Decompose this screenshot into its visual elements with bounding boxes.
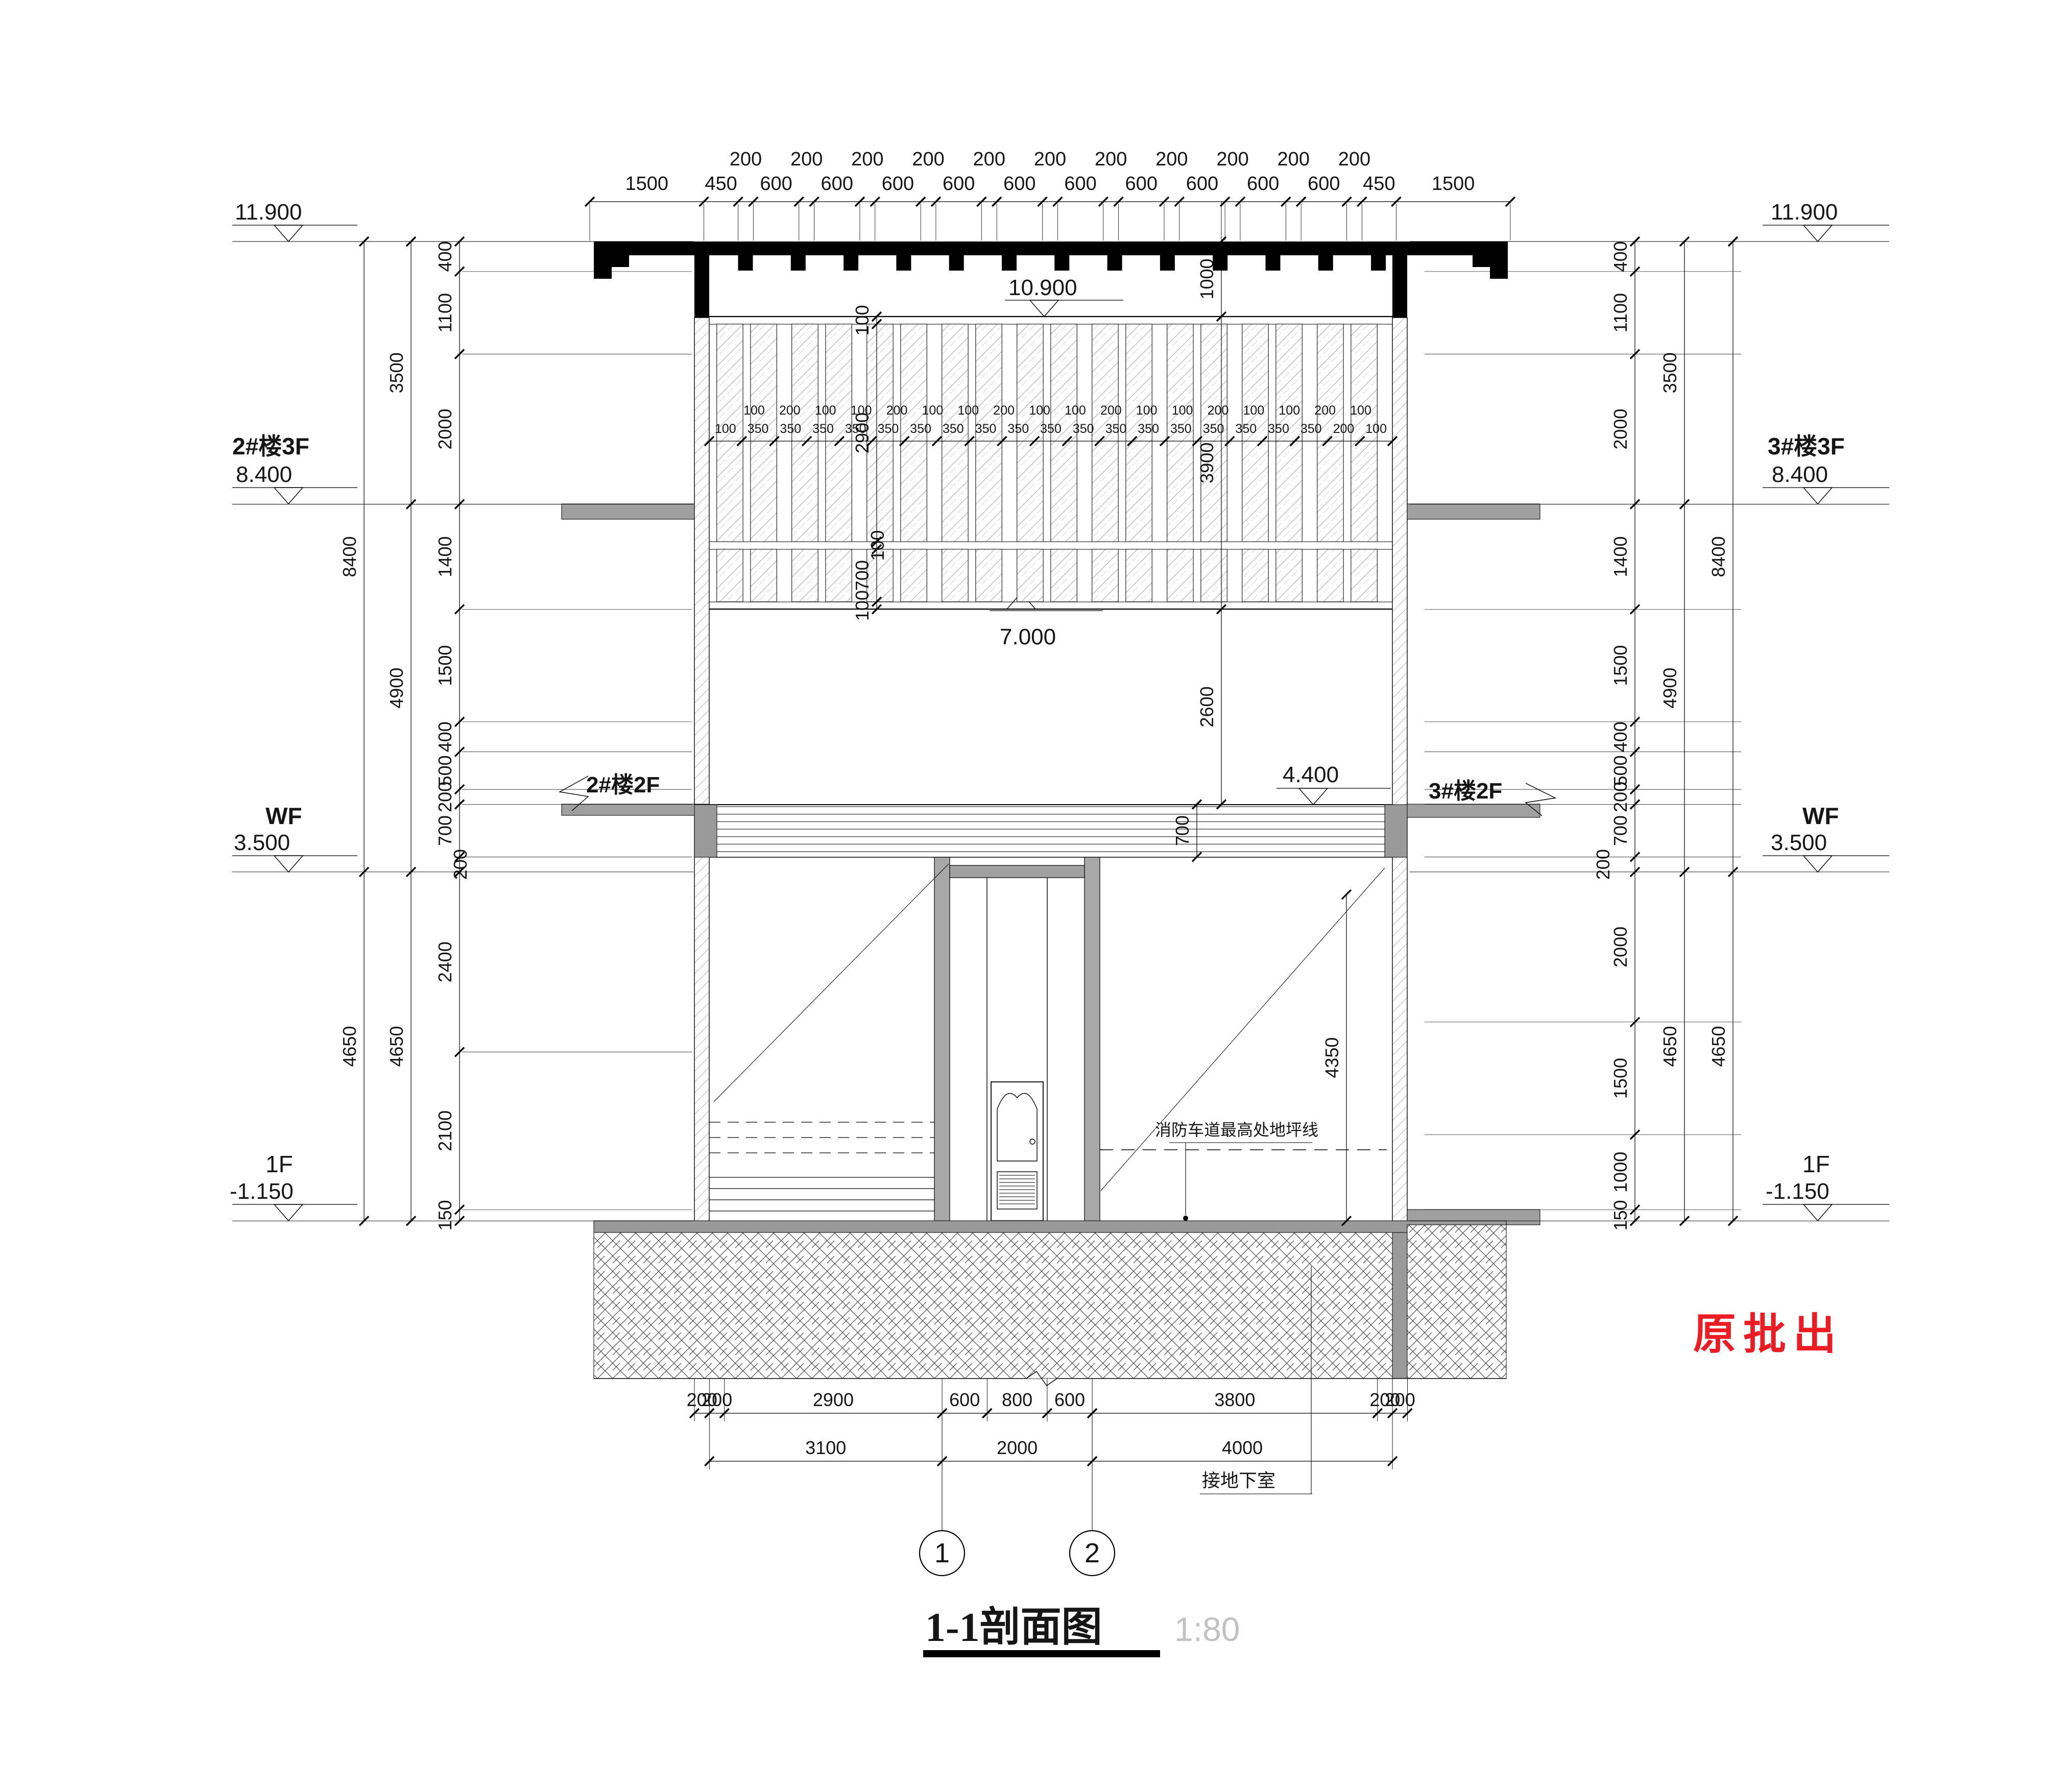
floor-slab — [594, 1221, 1506, 1232]
dim-label: 350 — [780, 422, 801, 436]
dim-label: 2000 — [1610, 927, 1631, 968]
floor-band-4400 — [694, 805, 1407, 857]
elev-7000: 7.000 — [1000, 624, 1056, 649]
dim-label: 350 — [1235, 422, 1257, 436]
left-name-wf: WF — [266, 803, 302, 829]
cad-element — [896, 255, 911, 271]
dim-label: 2100 — [435, 1110, 455, 1151]
right-slab-8400 — [1407, 504, 1540, 519]
dim-label: 4650 — [1659, 1026, 1680, 1067]
dim-label: 1100 — [435, 293, 455, 332]
dim-label: 1400 — [1610, 536, 1631, 577]
dim-label: 8400 — [1708, 536, 1729, 577]
cad-element — [1167, 549, 1193, 602]
band-right-block — [1385, 805, 1407, 857]
ground-hatch — [594, 1232, 1392, 1379]
dim-label: 100 — [1029, 403, 1050, 418]
dim-label: 200 — [1155, 149, 1188, 170]
striped-beam-band — [709, 805, 1392, 857]
level-triangle — [1803, 488, 1832, 504]
right-elev-11900: 11.900 — [1771, 200, 1838, 225]
cad-element — [1107, 255, 1122, 271]
dim-label: 8400 — [339, 536, 360, 577]
cad-element — [1054, 255, 1069, 271]
dim-label: 2000 — [435, 408, 455, 449]
dim-label: 350 — [1105, 422, 1127, 436]
level-triangle — [274, 488, 303, 504]
dim-label: 1400 — [435, 536, 455, 577]
dim-label: 600 — [882, 173, 914, 195]
left-elev-8400: 8.400 — [236, 462, 292, 487]
dim-label: 200 — [1610, 782, 1631, 812]
level-triangle — [274, 1204, 303, 1221]
dim-label: 1500 — [1610, 1058, 1631, 1099]
cad-element — [1266, 255, 1281, 271]
cad-element — [901, 549, 927, 602]
misc-lines — [714, 864, 1387, 1191]
dim-label: 100 — [1065, 403, 1086, 418]
dim-label: 200 — [973, 149, 1005, 170]
cad-element — [792, 549, 818, 602]
cad-element — [1371, 255, 1386, 271]
right-wall — [1392, 318, 1407, 1221]
dim-label: 200 — [851, 149, 883, 170]
cad-element — [1351, 549, 1377, 602]
level-triangle — [1803, 1204, 1832, 1221]
dim-label: 3900 — [1196, 443, 1217, 483]
left-elev-m1150: -1.150 — [230, 1179, 294, 1204]
dim-label: 200 — [1216, 149, 1248, 170]
dim-label: 100 — [852, 590, 873, 621]
cad-element — [1017, 549, 1043, 602]
cad-element — [1317, 549, 1343, 602]
fire-lane-text: 消防车道最高处地坪线 — [1155, 1121, 1318, 1139]
dim-label: 600 — [1054, 1389, 1085, 1410]
dim-label: 100 — [957, 403, 979, 418]
right-ramp-line — [1101, 868, 1385, 1191]
dim-label: 350 — [1138, 422, 1159, 436]
dim-label: 100 — [1350, 403, 1371, 418]
cad-element — [1276, 549, 1302, 602]
cad-element — [826, 549, 852, 602]
dim-label: 200 — [1034, 149, 1066, 170]
dim-label: 400 — [435, 721, 455, 752]
cad-element — [1242, 549, 1268, 602]
left-name-1f: 1F — [266, 1151, 293, 1177]
dim-label: 1500 — [1432, 173, 1475, 195]
elev-4400: 4.400 — [1283, 762, 1339, 787]
dim-label: 150 — [435, 1200, 455, 1230]
cad-element — [1318, 255, 1333, 271]
cad-element — [717, 549, 743, 602]
dim-label: 200 — [1208, 403, 1229, 418]
elev-10900: 10.900 — [1008, 275, 1077, 300]
dim-label: 3500 — [1659, 352, 1680, 393]
right-floor2-label: 3#楼2F — [1429, 779, 1502, 804]
dim-label: 200 — [1593, 849, 1613, 880]
dim-label: 450 — [705, 173, 737, 195]
cad-element — [1051, 549, 1077, 602]
dim-label: 200 — [1338, 149, 1370, 170]
cad-element — [1213, 255, 1227, 271]
dim-label: 350 — [812, 422, 834, 436]
left-floor2-label: 2#楼2F — [586, 772, 660, 797]
drawing-scale: 1:80 — [1174, 1610, 1240, 1648]
left-parapet — [694, 255, 709, 318]
dim-label: 100 — [1243, 403, 1265, 418]
dim-label: 700 — [1610, 815, 1631, 846]
dim-label: 2400 — [435, 941, 455, 982]
dim-label: 700 — [435, 815, 455, 846]
dim-label: 350 — [845, 422, 866, 436]
dim-label: 200 — [1095, 149, 1127, 170]
dim-label: 350 — [1268, 422, 1289, 436]
dim-label: 600 — [1003, 173, 1035, 195]
left-wall — [694, 318, 709, 1221]
section-drawing: 11.900 2#楼3F 8.400 WF 3.500 1F -1.150 11… — [0, 0, 2072, 1789]
left-name-3f: 2#楼3F — [232, 433, 309, 460]
roof-slab — [594, 241, 1508, 255]
dim-label: 200 — [450, 849, 471, 880]
dim-label: 100 — [852, 305, 873, 335]
dim-label: 1500 — [625, 173, 668, 195]
dim-label: 4350 — [1321, 1037, 1342, 1078]
right-name-3f: 3#楼3F — [1768, 433, 1845, 460]
dim-label: 200 — [1100, 403, 1122, 418]
drawing-page: 11.900 2#楼3F 8.400 WF 3.500 1F -1.150 11… — [0, 0, 2072, 1789]
cad-element — [738, 255, 753, 271]
door-leaf — [991, 1082, 1043, 1221]
dim-label: 450 — [1363, 173, 1395, 195]
left-slab-8400 — [562, 504, 694, 519]
level-triangle — [274, 225, 303, 241]
dim-label: 4650 — [386, 1026, 407, 1067]
dim-label: 700 — [1172, 815, 1193, 846]
dim-label: 4900 — [386, 668, 407, 709]
dim-label: 200 — [790, 149, 823, 170]
dim-label: 100 — [1279, 403, 1300, 418]
window-band — [717, 324, 1378, 602]
drawing-title: 1-1剖面图 — [925, 1605, 1102, 1650]
dim-label: 4650 — [1708, 1026, 1729, 1067]
dim-label: 100 — [743, 403, 765, 418]
left-sight-line — [714, 864, 949, 1102]
dim-label: 4650 — [339, 1026, 360, 1067]
dim-label: 600 — [1247, 173, 1279, 195]
right-elev-m1150: -1.150 — [1766, 1179, 1829, 1204]
ground-works — [594, 1221, 1506, 1386]
dim-label: 350 — [1073, 422, 1094, 436]
dim-label: 350 — [878, 422, 899, 436]
dim-label: 350 — [910, 422, 931, 436]
approval-stamp: 原批出 — [1693, 1310, 1843, 1358]
dim-label: 200 — [1333, 422, 1355, 436]
dim-label: 1000 — [1610, 1152, 1631, 1193]
dim-label: 100 — [815, 403, 836, 418]
level-triangle — [274, 856, 303, 872]
axis-number-2: 2 — [1085, 1538, 1100, 1568]
dim-label: 4900 — [1659, 668, 1680, 709]
left-elev-11900: 11.900 — [235, 200, 302, 225]
dim-label: 100 — [1136, 403, 1158, 418]
cad-element — [942, 549, 968, 602]
dim-label: 200 — [1314, 403, 1336, 418]
dim-label: 150 — [1610, 1200, 1631, 1230]
dim-label: 200 — [702, 1389, 732, 1410]
dim-label: 100 — [922, 403, 944, 418]
dim-label: 350 — [975, 422, 997, 436]
level-triangle — [1299, 788, 1328, 805]
dim-label: 600 — [943, 173, 975, 195]
right-slab-4400 — [1407, 804, 1540, 817]
dim-label: 350 — [1170, 422, 1192, 436]
dim-label: 2000 — [1610, 408, 1631, 449]
dim-label: 350 — [748, 422, 769, 436]
dim-label: 350 — [1040, 422, 1062, 436]
dim-label: 200 — [886, 403, 908, 418]
dim-label: 200 — [779, 403, 801, 418]
dim-label: 200 — [435, 782, 455, 812]
band-left-block — [694, 805, 717, 857]
dim-label: 350 — [1203, 422, 1224, 436]
dim-label: 600 — [1125, 173, 1158, 195]
dim-label: 800 — [1002, 1389, 1032, 1410]
right-elev-8400: 8.400 — [1772, 462, 1828, 487]
dim-label: 2000 — [997, 1437, 1038, 1458]
dim-label: 200 — [1385, 1389, 1415, 1410]
level-triangle — [1803, 225, 1832, 241]
dim-label: 600 — [949, 1389, 980, 1410]
dim-label: 200 — [912, 149, 944, 170]
dim-label: 1100 — [1610, 293, 1631, 332]
dim-label: 1500 — [1610, 645, 1631, 686]
cad-element — [1126, 549, 1152, 602]
left-slab-4400 — [562, 804, 709, 815]
basement-text: 接地下室 — [1202, 1470, 1275, 1491]
cad-element — [751, 549, 777, 602]
dim-label: 2600 — [1196, 686, 1217, 727]
left-elev-3500: 3.500 — [234, 830, 290, 855]
level-triangle — [1030, 300, 1058, 317]
right-parapet — [1392, 255, 1407, 318]
dim-label: 350 — [1007, 422, 1029, 436]
dim-label: 3100 — [805, 1437, 846, 1458]
dim-label: 3500 — [386, 352, 407, 393]
dim-label: 700 — [852, 560, 873, 591]
dim-label: 350 — [943, 422, 964, 436]
dim-label: 500 — [435, 755, 455, 786]
dim-label: 1500 — [435, 645, 455, 686]
right-elev-3500: 3.500 — [1771, 830, 1827, 855]
dim-label: 600 — [1186, 173, 1218, 195]
right-name-1f: 1F — [1802, 1151, 1830, 1177]
dim-label: 400 — [1610, 721, 1631, 752]
dim-label: 600 — [821, 173, 853, 195]
dim-label: 200 — [1278, 149, 1310, 170]
dim-label: 600 — [1308, 173, 1340, 195]
dim-label: 100 — [715, 422, 736, 436]
dim-label: 2900 — [813, 1389, 854, 1410]
dim-label: 500 — [1610, 755, 1631, 786]
dim-label: 100 — [851, 403, 872, 418]
cad-element — [1160, 255, 1175, 271]
title-underline — [923, 1650, 1160, 1657]
dim-label: 600 — [1064, 173, 1096, 195]
dim-label: 200 — [730, 149, 762, 170]
dim-label: 3800 — [1214, 1389, 1255, 1410]
cad-element — [1002, 255, 1017, 271]
dim-label: 100 — [1172, 403, 1193, 418]
axis-number-1: 1 — [934, 1538, 950, 1568]
dim-label: 400 — [435, 241, 455, 272]
level-triangle — [1803, 856, 1832, 872]
cad-element — [976, 549, 1002, 602]
cad-element — [949, 255, 964, 271]
dim-label: 400 — [1610, 241, 1631, 272]
dim-label: 600 — [760, 173, 792, 195]
cad-element — [1201, 549, 1227, 602]
right-name-wf: WF — [1802, 803, 1839, 829]
cad-element — [791, 255, 806, 271]
fire-lane-dot — [1183, 1216, 1188, 1221]
dim-label: 100 — [1365, 422, 1387, 436]
dim-label: 100 — [867, 530, 888, 561]
cad-element — [844, 255, 858, 271]
dim-label: 200 — [993, 403, 1015, 418]
right-wall-foundation — [1392, 1221, 1407, 1379]
dim-label: 4000 — [1222, 1437, 1263, 1458]
dim-label: 350 — [1300, 422, 1322, 436]
door-lintel — [950, 865, 1085, 878]
cad-element — [1092, 549, 1118, 602]
ground-hatch-right — [1407, 1225, 1506, 1379]
